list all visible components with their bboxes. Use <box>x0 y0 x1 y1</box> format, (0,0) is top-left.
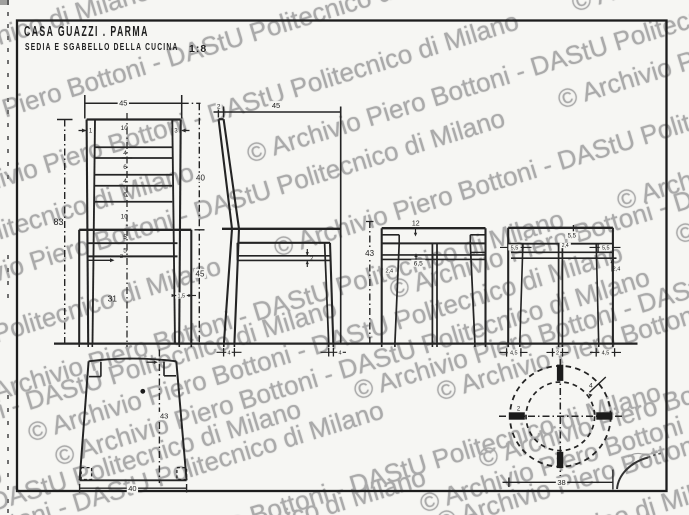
svg-text:6: 6 <box>123 164 127 171</box>
svg-text:2: 2 <box>556 351 559 357</box>
svg-text:12: 12 <box>412 220 420 227</box>
svg-text:2: 2 <box>310 256 313 262</box>
svg-text:83: 83 <box>53 217 63 227</box>
svg-text:5: 5 <box>123 234 127 241</box>
svg-text:5,5: 5,5 <box>602 245 610 251</box>
svg-text:5,5: 5,5 <box>568 234 577 240</box>
svg-text:38: 38 <box>557 478 565 487</box>
svg-text:1,5: 1,5 <box>177 293 185 299</box>
svg-text:4: 4 <box>589 382 593 389</box>
svg-text:43: 43 <box>160 412 168 421</box>
svg-text:31: 31 <box>108 294 118 304</box>
svg-text:10: 10 <box>121 125 129 132</box>
svg-text:5: 5 <box>123 247 127 254</box>
svg-text:40: 40 <box>128 484 136 493</box>
svg-text:45: 45 <box>196 269 205 278</box>
svg-text:2: 2 <box>120 254 123 260</box>
svg-text:2: 2 <box>517 407 521 413</box>
svg-text:4: 4 <box>123 150 127 157</box>
svg-text:4: 4 <box>123 178 127 185</box>
svg-text:2,4: 2,4 <box>613 266 621 272</box>
svg-text:2: 2 <box>217 103 221 110</box>
svg-text:43: 43 <box>365 249 374 258</box>
svg-text:2,4: 2,4 <box>562 243 569 249</box>
svg-text:45: 45 <box>119 99 127 108</box>
svg-text:2,4: 2,4 <box>385 269 393 275</box>
svg-text:5,5: 5,5 <box>511 245 519 251</box>
svg-text:4,5: 4,5 <box>602 351 610 357</box>
svg-text:4,5: 4,5 <box>510 351 518 357</box>
svg-text:45: 45 <box>272 101 280 110</box>
svg-text:4: 4 <box>338 350 341 356</box>
svg-text:4: 4 <box>227 350 230 356</box>
svg-text:10: 10 <box>121 213 129 220</box>
svg-text:3: 3 <box>174 129 178 135</box>
svg-text:6: 6 <box>123 191 127 198</box>
svg-text:6,5: 6,5 <box>414 260 423 267</box>
svg-text:1: 1 <box>89 129 93 135</box>
svg-text:40: 40 <box>196 173 205 182</box>
